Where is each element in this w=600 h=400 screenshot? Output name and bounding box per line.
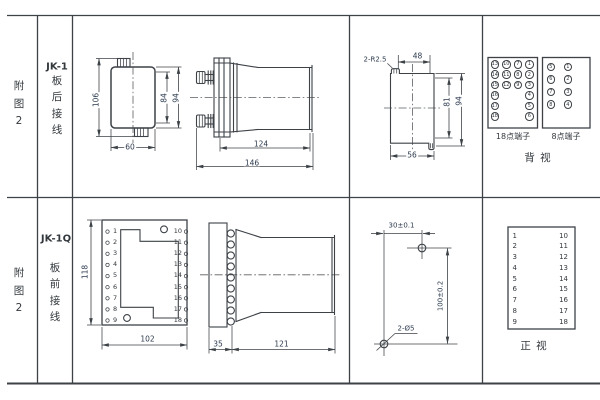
terminal-number: 18 — [174, 315, 182, 326]
terminal-number: 15 — [174, 282, 182, 293]
terminal-number: 12 — [174, 248, 182, 259]
drilling-template-drawing — [371, 230, 458, 356]
dim-102: 102 — [139, 335, 155, 343]
wiring-char: 板 — [50, 259, 61, 276]
panel-cutout-drawing — [384, 55, 465, 160]
figure-label-bottom: 附图2 — [11, 264, 27, 317]
wiring-char: 接 — [52, 105, 63, 122]
table-number: 7 — [513, 295, 525, 306]
terminal-18-cell: 9 — [514, 81, 523, 90]
table-number: 15 — [559, 284, 568, 295]
wiring-char: 后 — [52, 89, 63, 106]
terminal-number: 4 — [113, 259, 124, 270]
terminal-8-cell: 2 — [564, 75, 573, 84]
table-number: 8 — [513, 306, 525, 317]
terminal-18-cell: 4 — [525, 91, 534, 100]
wiring-char: 线 — [52, 122, 63, 139]
terminal-number: 10 — [174, 226, 182, 237]
terminal-number: 16 — [174, 293, 182, 304]
terminal-18-cell: 6 — [525, 112, 534, 121]
dim-121: 121 — [273, 340, 289, 348]
terminal-number: 9 — [113, 315, 124, 326]
terminal-18-cell: 8 — [514, 70, 523, 79]
figure-label-char: 2 — [16, 299, 23, 317]
dim-94: 94 — [172, 92, 180, 104]
dim-100: 100±0.2 — [438, 279, 445, 311]
label-rear-view: 背 视 — [524, 152, 551, 163]
terminal-18-cell: 17 — [491, 102, 500, 111]
terminal-18-cell: 18 — [491, 112, 500, 121]
table-right-numbers: 101112131415161718 — [545, 231, 568, 328]
dim-60: 60 — [124, 143, 136, 151]
terminal-18-cell: 3 — [525, 81, 534, 90]
table-number: 6 — [513, 284, 525, 295]
wiring-char: 前 — [50, 276, 61, 293]
terminal-number: 3 — [113, 248, 124, 259]
label-8-point: 8点端子 — [551, 133, 580, 141]
table-number: 17 — [559, 306, 568, 317]
table-number: 12 — [559, 252, 568, 263]
dim-94-cutout: 94 — [455, 95, 463, 107]
dim-81: 81 — [443, 96, 451, 108]
figure-label-char: 2 — [16, 112, 23, 130]
front-view-right-numbers: 101112131415161718 — [166, 226, 182, 326]
terminal-18-cell: 7 — [514, 60, 523, 69]
wiring-char: 接 — [50, 292, 61, 309]
table-number: 16 — [559, 295, 568, 306]
figure-label-char: 图 — [14, 95, 25, 113]
table-number: 9 — [513, 317, 525, 328]
dim-35: 35 — [212, 340, 224, 348]
terminal-number: 11 — [174, 237, 182, 248]
front-view-left-numbers: 123456789 — [113, 226, 124, 326]
front-left-terminal-dots — [106, 230, 109, 322]
relay-dimension-sheet: 附图2 JK-1 板后接线 附图2 JK-1Q 板前接线 106 84 94 6… — [0, 0, 600, 400]
dim-30: 30±0.1 — [388, 222, 416, 229]
figure-label-char: 图 — [14, 282, 25, 300]
terminal-18-cell: 13 — [491, 60, 500, 69]
label-18-point: 18点端子 — [496, 133, 530, 141]
dim-56: 56 — [406, 151, 418, 159]
terminal-8-cell: 7 — [547, 88, 556, 97]
label-hole-diameter: 2-Ø5 — [397, 325, 416, 332]
terminal-8-cell: 6 — [547, 75, 556, 84]
terminal-number: 1 — [113, 226, 124, 237]
terminal-number: 7 — [113, 293, 124, 304]
terminal-8-cell: 3 — [564, 88, 573, 97]
terminal-number: 14 — [174, 270, 182, 281]
dim-118: 118 — [81, 263, 89, 279]
terminal-grid-18: 131071141182151293164175186 — [491, 60, 537, 122]
wiring-label-front: 板前接线 — [47, 259, 63, 325]
terminal-18-cell: 12 — [502, 81, 511, 90]
dim-48: 48 — [412, 52, 424, 60]
terminal-number: 2 — [113, 237, 124, 248]
terminal-18-cell: 5 — [525, 102, 534, 111]
figure-label-top: 附图2 — [11, 77, 27, 130]
label-front-view: 正 视 — [520, 341, 547, 352]
figure-label-char: 附 — [14, 264, 25, 282]
table-number: 4 — [513, 263, 525, 274]
figure-label-char: 附 — [14, 77, 25, 95]
table-number: 11 — [559, 241, 568, 252]
wiring-label-rear: 板后接线 — [49, 72, 65, 138]
terminal-number: 13 — [174, 259, 182, 270]
model-label-jk1: JK-1 — [46, 62, 68, 73]
dim-84: 84 — [160, 92, 168, 104]
terminal-18-cell: 2 — [525, 70, 534, 79]
wiring-char: 板 — [52, 72, 63, 89]
terminal-number: 5 — [113, 270, 124, 281]
terminal-8-cell: 4 — [564, 100, 573, 109]
terminal-number: 6 — [113, 282, 124, 293]
table-number: 18 — [559, 317, 568, 328]
table-number: 1 — [513, 231, 525, 242]
terminal-8-cell: 8 — [547, 100, 556, 109]
label-corner-radius: 2-R2.5 — [363, 56, 388, 63]
terminal-8-cell: 5 — [547, 63, 556, 72]
terminal-18-cell: 11 — [502, 70, 511, 79]
jk1q-side-view-drawing — [200, 223, 342, 354]
terminal-18-cell: 14 — [491, 70, 500, 79]
wiring-char: 线 — [50, 309, 61, 326]
table-number: 5 — [513, 274, 525, 285]
terminal-grid-8: 51627384 — [547, 63, 581, 113]
dim-146: 146 — [244, 159, 260, 167]
model-label-jk1q: JK-1Q — [41, 234, 71, 245]
jk1-side-view-drawing — [190, 58, 320, 170]
table-number: 3 — [513, 252, 525, 263]
dim-124: 124 — [253, 140, 269, 148]
terminal-18-cell: 15 — [491, 81, 500, 90]
dim-106: 106 — [92, 92, 100, 108]
terminal-18-cell: 16 — [491, 91, 500, 100]
table-left-numbers: 123456789 — [513, 231, 525, 328]
table-number: 14 — [559, 274, 568, 285]
jk1-rear-outline-drawing — [96, 52, 182, 151]
terminal-18-cell: 10 — [502, 60, 511, 69]
table-number: 2 — [513, 241, 525, 252]
terminal-18-cell: 1 — [525, 60, 534, 69]
terminal-8-cell: 1 — [564, 63, 573, 72]
table-number: 13 — [559, 263, 568, 274]
terminal-number: 17 — [174, 304, 182, 315]
terminal-number: 8 — [113, 304, 124, 315]
table-number: 10 — [559, 231, 568, 242]
